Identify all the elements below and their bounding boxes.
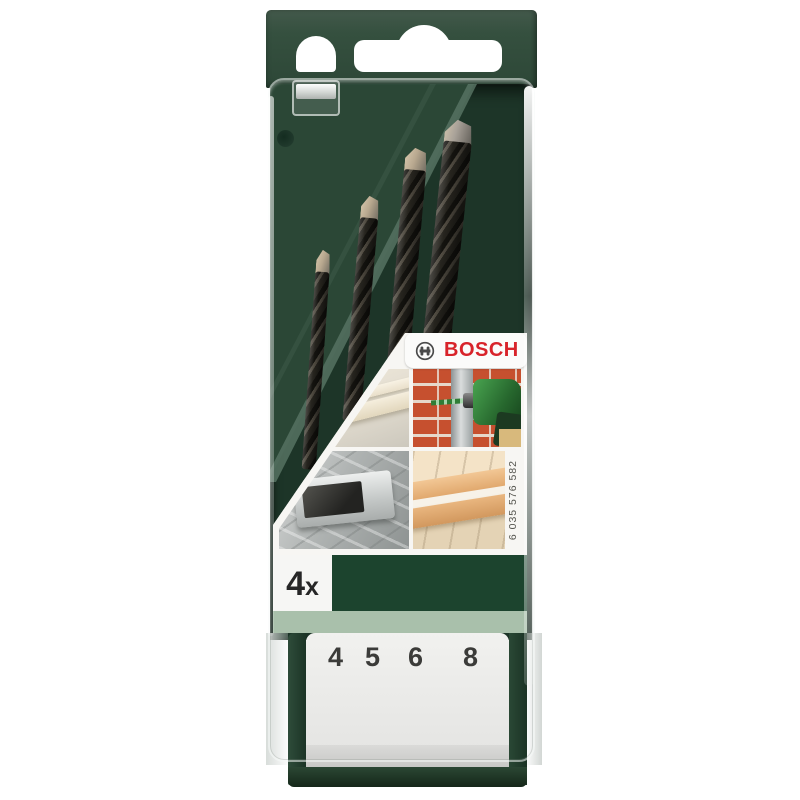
bosch-logo-plate: BOSCH [405,333,527,368]
quantity-number: 4 [286,567,305,601]
quantity-suffix: x [305,575,319,600]
drawer-frame-right [509,633,527,785]
label-band-sage [273,611,527,633]
lid-hinge-clip [296,84,336,99]
application-image-masonry [413,369,521,447]
application-image-wood [413,451,505,549]
mold-divot [277,130,294,147]
size-label-5: 5 [365,642,380,673]
metal-tube-opening [302,481,365,518]
product-photo-drill-bit-set: 6 035 576 582 BOSCH 4 x 4 5 6 8 [0,0,800,800]
drawer-frame-left [288,633,306,785]
label-band-dark-green [332,555,527,611]
size-label-6: 6 [408,642,423,673]
quantity-badge: 4 x [273,555,332,611]
part-number: 6 035 576 582 [507,460,519,540]
size-label-8: 8 [463,642,478,673]
size-label-4: 4 [328,642,343,673]
lid-side-highlight-left [266,633,288,765]
wood-sill [499,429,521,447]
metal-channel [451,369,473,447]
bosch-armature-icon [415,341,435,361]
drawer-frame-bottom [288,767,527,787]
brand-text: BOSCH [444,339,519,362]
drawer-front-edge [306,745,509,767]
part-number-strip: 6 035 576 582 [505,451,521,549]
round-hang-hole [296,36,336,72]
lid-side-highlight-right [527,633,542,765]
